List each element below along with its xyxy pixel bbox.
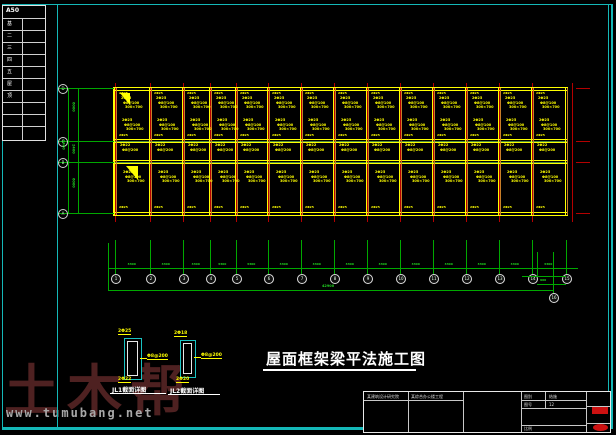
beam-label-lower: 2Φ25Φ8@100300×700 — [375, 170, 397, 184]
bottom-extension-line — [466, 240, 467, 268]
sheet-type-label: 图别 — [524, 394, 532, 400]
right-sub-dim-text: 900 — [540, 278, 546, 282]
bottom-axis-bubble: 1 — [111, 274, 121, 284]
left-axis-bubble: D — [58, 84, 68, 94]
bottom-axis-bubble: 8 — [330, 274, 340, 284]
drawing-title-underline — [263, 369, 416, 371]
bottom-axis-bubble: 10 — [396, 274, 406, 284]
layer-table-row-line — [3, 78, 45, 79]
layer-table-cell: 基 — [7, 20, 12, 27]
detail1-bottom-rebar-label: 2Φ22 — [118, 377, 131, 383]
beam-label-line: Φ8@200 — [341, 148, 357, 153]
frame-column-beam — [531, 88, 532, 215]
beam-label-upper: 2Φ25Φ8@100300×700 — [538, 96, 560, 110]
bottom-axis-bubble: 9 — [363, 274, 373, 284]
beam-label-line: 300×700 — [194, 127, 212, 132]
detail2-caption-underline — [168, 394, 220, 395]
row-grid-stub-right — [576, 88, 590, 89]
beam-midtop-tick-label: 2Φ25 — [119, 133, 128, 137]
bay-dim-text: 3300 — [128, 262, 136, 266]
bottom-extension-line — [301, 240, 302, 268]
bay-dim-text: 3300 — [412, 262, 420, 266]
title-block-divider — [463, 392, 464, 432]
beam-label-lower: 2Φ25Φ8@100300×700 — [441, 170, 463, 184]
beam-label-upper2: 2Φ25Φ8@100300×700 — [341, 118, 363, 132]
stair-triangle-symbol — [126, 166, 138, 180]
layer-table-cell: 屋 — [7, 80, 12, 87]
right-sub-dim-line — [537, 284, 566, 285]
beam-label-lower: 2Φ25Φ8@100300×700 — [474, 170, 496, 184]
beam-bottom-tick-label: 2Φ25 — [437, 205, 446, 209]
beam-label-line: 300×700 — [312, 127, 330, 132]
frame-top — [2, 4, 612, 5]
bottom-extension-line — [236, 240, 237, 268]
beam-label-line: Φ8@200 — [190, 148, 206, 153]
beam-label-line: 300×700 — [445, 179, 463, 184]
bottom-axis-bubble: 3 — [179, 274, 189, 284]
layer-table-cell: 二 — [7, 32, 12, 39]
detail1-stirrup — [127, 341, 138, 376]
beam-label-lower: 2Φ25Φ8@100300×700 — [507, 170, 529, 184]
beam-label-upper2: 2Φ25Φ8@100300×700 — [217, 118, 239, 132]
title-block-divider — [586, 392, 587, 432]
beam-bottom-tick-label: 2Φ25 — [187, 205, 196, 209]
beam-label-line: 300×700 — [444, 127, 462, 132]
cad-viewport: 土木帮 www.tumubang.net 2Φ252Φ25Φ8@100300×7… — [0, 0, 616, 435]
beam-label-upper: 2Φ25Φ8@100300×700 — [472, 96, 494, 110]
bottom-dim-corner — [108, 243, 109, 290]
beam-midtop-tick-label: 2Φ25 — [305, 133, 314, 137]
bottom-axis-bubble: 5 — [232, 274, 242, 284]
beam-bottom-tick-label: 2Φ25 — [371, 205, 380, 209]
layer-table-row-line — [3, 90, 45, 91]
frame-column-beam — [498, 88, 499, 215]
beam-label-upper2: 2Φ25Φ8@100300×700 — [473, 118, 495, 132]
beam-label-line: 300×700 — [544, 179, 562, 184]
beam-label-line: 300×700 — [543, 127, 561, 132]
left-axis-bubble: A — [58, 209, 68, 219]
sheet-no-label: 图号 — [524, 402, 532, 408]
beam-bottom-tick-label: 2Φ25 — [214, 205, 223, 209]
beam-bottom-tick-label: 2Φ25 — [272, 205, 281, 209]
frame-column-beam — [300, 88, 301, 215]
beam-label-mid: 2Φ22Φ8@200 — [241, 143, 259, 152]
beam-label-line: 300×700 — [344, 105, 362, 110]
beam-label-line: 300×700 — [280, 179, 298, 184]
beam-label-upper: 2Φ25Φ8@100300×700 — [274, 96, 296, 110]
title-block: 某建筑设计研究院 某综合办公楼工程 图别 结施 图号 12 比例 — [363, 391, 611, 433]
beam-label-line: 300×700 — [511, 179, 529, 184]
beam-label-lower: 2Φ25Φ8@100300×700 — [408, 170, 430, 184]
beam-label-upper: 2Φ25Φ8@100300×700 — [242, 96, 264, 110]
overall-dim-text: 42900 — [322, 284, 334, 289]
bottom-axis-bubble: 7 — [297, 274, 307, 284]
bottom-extension-line — [400, 240, 401, 268]
beam-label-mid: 2Φ22Φ8@200 — [306, 143, 324, 152]
beam-label-lower: 2Φ25Φ8@100300×700 — [191, 170, 213, 184]
bottom-extension-line — [433, 240, 434, 268]
beam-label-upper2: 2Φ25Φ8@100300×700 — [190, 118, 212, 132]
beam-label-mid: 2Φ22Φ8@200 — [471, 143, 489, 152]
frame-column-beam — [465, 88, 466, 215]
beam-top-tick-label: 2Φ25 — [272, 91, 281, 95]
detail2-stirrup-label: Φ8@200 — [201, 353, 222, 359]
frame-right-outer — [611, 4, 613, 429]
beam-label-line: 300×700 — [279, 127, 297, 132]
beam-label-upper: 2Φ25Φ8@100300×700 — [307, 96, 329, 110]
beam-top-tick-label: 2Φ25 — [503, 91, 512, 95]
beam-label-line: 300×700 — [161, 127, 179, 132]
beam-label-line: Φ8@200 — [407, 148, 423, 153]
bay-dim-text: 3300 — [192, 262, 200, 266]
bottom-axis-bubble: 12 — [462, 274, 472, 284]
beam-label-line: 300×700 — [247, 127, 265, 132]
beam-label-line: Φ8@200 — [539, 148, 555, 153]
bay-dim-text: 3300 — [162, 262, 170, 266]
beam-label-mid: 2Φ22Φ8@200 — [537, 143, 555, 152]
beam-label-lower: 2Φ25Φ8@100300×700 — [218, 170, 240, 184]
beam-label-mid: 2Φ22Φ8@200 — [504, 143, 522, 152]
layer-table-header: A50 — [6, 7, 19, 14]
beam-label-line: 300×700 — [346, 179, 364, 184]
beam-label-line: Φ8@200 — [157, 148, 173, 153]
beam-midtop-tick-label: 2Φ25 — [214, 133, 223, 137]
bay-dim-text: 3300 — [379, 262, 387, 266]
beam-top-tick-label: 2Φ25 — [470, 91, 479, 95]
beam-label-line: 300×700 — [313, 179, 331, 184]
layer-table-cell: 三 — [7, 44, 12, 51]
red-stamp-oval — [593, 424, 608, 431]
beam-label-line: 300×700 — [509, 105, 527, 110]
bay-dim-text: 3300 — [280, 262, 288, 266]
detail2-top-rebar-label: 2Φ18 — [174, 331, 187, 337]
beam-label-line: 300×700 — [379, 179, 397, 184]
title-block-divider — [408, 392, 409, 432]
layer-table-row-line — [3, 42, 45, 43]
frame-column-beam — [269, 88, 270, 215]
beam-label-line: 300×700 — [246, 105, 264, 110]
beam-label-line: 300×700 — [248, 179, 266, 184]
detail1-caption-underline — [110, 393, 166, 394]
beam-midtop-tick-label: 2Φ25 — [272, 133, 281, 137]
layer-table-row-line — [3, 102, 45, 103]
beam-label-line: Φ8@200 — [275, 148, 291, 153]
bay-dim-text: 3300 — [346, 262, 354, 266]
detail2-leader-line — [194, 357, 201, 358]
frame-bottom — [2, 427, 364, 430]
bay-dim-text: 3300 — [511, 262, 519, 266]
sheet-no-value: 12 — [549, 402, 554, 407]
beam-midtop-tick-label: 2Φ25 — [154, 133, 163, 137]
beam-label-upper2: 2Φ25Φ8@100300×700 — [407, 118, 429, 132]
beam-label-upper2: 2Φ25Φ8@100300×700 — [243, 118, 265, 132]
layer-table-row-line — [3, 126, 45, 127]
beam-label-line: 300×700 — [542, 105, 560, 110]
beam-label-line: 300×700 — [162, 179, 180, 184]
row-grid-stub-right — [576, 141, 590, 142]
beam-label-upper: 2Φ25Φ8@100300×700 — [505, 96, 527, 110]
bottom-axis-bubble: 13 — [495, 274, 505, 284]
detail1-top-rebar-label: 2Φ25 — [118, 329, 131, 335]
beam-label-lower: 2Φ25Φ8@100300×700 — [309, 170, 331, 184]
frame-column-beam — [333, 88, 334, 215]
drawing-title: 屋面框架梁平法施工图 — [266, 348, 426, 369]
beam-label-line: 300×700 — [311, 105, 329, 110]
bay-dim-text: 3300 — [478, 262, 486, 266]
beam-label-upper2: 2Φ25Φ8@100300×700 — [308, 118, 330, 132]
left-dim-text: 6000 — [71, 178, 76, 188]
layer-table-row-line — [3, 54, 45, 55]
stair-triangle-symbol — [120, 93, 130, 105]
beam-top-tick-label: 2Φ25 — [338, 91, 347, 95]
title-block-divider — [545, 392, 546, 408]
frame-column-beam — [399, 88, 400, 215]
row-grid-stub-right — [576, 213, 590, 214]
bottom-axis-bubble: 11 — [429, 274, 439, 284]
bottom-dim-line — [108, 268, 578, 269]
beam-label-upper2: 2Φ25Φ8@100300×700 — [122, 118, 144, 132]
left-dim-text: 2400 — [71, 144, 76, 154]
bottom-extension-line — [532, 240, 533, 268]
frame-column-beam — [114, 88, 115, 215]
bottom-axis-bubble: 6 — [264, 274, 274, 284]
title-block-project: 某综合办公楼工程 — [411, 394, 443, 400]
beam-bottom-tick-label: 2Φ25 — [470, 205, 479, 209]
title-block-divider — [364, 400, 463, 401]
bottom-extension-line — [537, 252, 538, 276]
bottom-extension-line — [367, 240, 368, 268]
beam-top-tick-label: 2Φ25 — [371, 91, 380, 95]
beam-label-line: 300×700 — [220, 105, 238, 110]
beam-label-upper: 2Φ25Φ8@100300×700 — [189, 96, 211, 110]
beam-label-mid: 2Φ22Φ8@200 — [155, 143, 173, 152]
beam-label-lower: 2Φ25Φ8@100300×700 — [244, 170, 266, 184]
beam-label-mid: 2Φ22Φ8@200 — [273, 143, 291, 152]
beam-label-mid: 2Φ22Φ8@200 — [339, 143, 357, 152]
beam-midtop-tick-label: 2Φ25 — [536, 133, 545, 137]
frame-column-beam — [432, 88, 433, 215]
beam-label-upper2: 2Φ25Φ8@100300×700 — [440, 118, 462, 132]
beam-label-line: Φ8@200 — [308, 148, 324, 153]
beam-midtop-tick-label: 2Φ25 — [437, 133, 446, 137]
beam-label-line: 300×700 — [510, 127, 528, 132]
beam-label-upper2: 2Φ25Φ8@100300×700 — [374, 118, 396, 132]
frame-column-beam — [116, 88, 117, 215]
bottom-extension-line — [566, 240, 567, 268]
beam-bottom-tick-label: 2Φ25 — [119, 205, 128, 209]
detail2-bottom-rebar-label: 2Φ20 — [176, 377, 189, 383]
column-grid-line — [572, 83, 573, 222]
frame-column-beam — [434, 88, 435, 215]
beam-label-line: 300×700 — [377, 105, 395, 110]
frame-right-inner — [608, 4, 609, 429]
beam-label-line: 300×700 — [345, 127, 363, 132]
frame-column-beam — [267, 88, 268, 215]
beam-label-line: 300×700 — [412, 179, 430, 184]
beam-label-mid: 2Φ22Φ8@200 — [438, 143, 456, 152]
title-block-divider — [521, 392, 522, 432]
beam-label-line: Φ8@200 — [374, 148, 390, 153]
layer-table-cell: 五 — [7, 68, 12, 75]
beam-label-lower: 2Φ25Φ8@100300×700 — [540, 170, 562, 184]
beam-label-mid: 2Φ22Φ8@200 — [215, 143, 233, 152]
beam-label-line: 300×700 — [195, 179, 213, 184]
frame-column-beam — [533, 88, 534, 215]
frame-column-beam — [335, 88, 336, 215]
beam-label-lower: 2Φ25Φ8@100300×700 — [342, 170, 364, 184]
layer-table-row-line — [3, 66, 45, 67]
beam-top-tick-label: 2Φ25 — [240, 91, 249, 95]
left-dim-line — [78, 88, 79, 213]
layer-table-column-divider — [22, 18, 23, 140]
frame-column-beam — [182, 88, 183, 215]
beam-label-line: 300×700 — [125, 105, 143, 110]
beam-label-line: 300×700 — [443, 105, 461, 110]
beam-bottom-tick-label: 2Φ25 — [404, 205, 413, 209]
bottom-extension-line — [499, 240, 500, 268]
bottom-extension-line — [210, 240, 211, 268]
beam-label-line: Φ8@200 — [506, 148, 522, 153]
beam-label-mid: 2Φ22Φ8@200 — [120, 143, 138, 152]
bottom-extension-line — [268, 240, 269, 268]
beam-label-upper2: 2Φ25Φ8@100300×700 — [157, 118, 179, 132]
beam-label-line: 300×700 — [160, 105, 178, 110]
beam-label-line: 300×700 — [193, 105, 211, 110]
beam-label-upper2: 2Φ25Φ8@100300×700 — [506, 118, 528, 132]
bay-dim-text: 3300 — [313, 262, 321, 266]
beam-label-line: 300×700 — [477, 127, 495, 132]
bay-dim-text: 3300 — [247, 262, 255, 266]
bottom-axis-bubble: 2 — [146, 274, 156, 284]
detail2-section-outline — [180, 340, 196, 378]
left-dim-text: 6000 — [71, 102, 76, 112]
layer-table-cell: 四 — [7, 56, 12, 63]
title-block-divider — [521, 408, 586, 409]
frame-column-beam — [366, 88, 367, 215]
frame-column-beam — [401, 88, 402, 215]
left-dim-line — [68, 88, 69, 213]
bottom-extension-line — [183, 240, 184, 268]
beam-label-upper2: 2Φ25Φ8@100300×700 — [539, 118, 561, 132]
detail1-leader-line — [140, 358, 147, 359]
frame-column-beam — [211, 88, 212, 215]
row-grid-stub-right — [576, 162, 590, 163]
frame-column-beam — [184, 88, 185, 215]
beam-bottom-tick-label: 2Φ25 — [503, 205, 512, 209]
beam-label-upper: 2Φ25Φ8@100300×700 — [156, 96, 178, 110]
scale-label: 比例 — [524, 426, 532, 432]
beam-bottom-tick-label: 2Φ25 — [536, 205, 545, 209]
layer-table-cell: 顶 — [7, 92, 12, 99]
beam-midtop-tick-label: 2Φ25 — [404, 133, 413, 137]
bottom-axis-bubble: 4 — [206, 274, 216, 284]
beam-label-line: 300×700 — [410, 105, 428, 110]
frame-column-beam — [368, 88, 369, 215]
frame-column-beam — [500, 88, 501, 215]
layer-table: A50 基二三四五屋顶 — [2, 5, 46, 141]
bay-dim-text: 3300 — [544, 262, 552, 266]
bottom-extension-line — [115, 240, 116, 268]
bottom-extension-line — [334, 240, 335, 268]
beam-label-line: 300×700 — [411, 127, 429, 132]
beam-midtop-tick-label: 2Φ25 — [187, 133, 196, 137]
beam-section-detail-2: 2Φ18 Φ8@200 2Φ20 JL2截面详图 — [166, 328, 232, 396]
beam-bottom-tick-label: 2Φ25 — [305, 205, 314, 209]
beam-label-line: Φ8@200 — [243, 148, 259, 153]
frame-column-beam — [567, 88, 568, 215]
beam-label-line: 300×700 — [478, 179, 496, 184]
beam-top-tick-label: 2Φ25 — [187, 91, 196, 95]
beam-label-line: Φ8@200 — [217, 148, 233, 153]
beam-bottom-tick-label: 2Φ25 — [154, 205, 163, 209]
beam-label-line: 300×700 — [278, 105, 296, 110]
title-block-divider — [521, 400, 586, 401]
beam-label-mid: 2Φ22Φ8@200 — [372, 143, 390, 152]
frame-column-beam — [302, 88, 303, 215]
detail1-stirrup-label: Φ8@200 — [147, 354, 168, 360]
bottom-extension-line — [150, 240, 151, 268]
beam-label-upper: 2Φ25Φ8@100300×700 — [340, 96, 362, 110]
bottom-sub-axis-bubble: 16 — [549, 293, 559, 303]
frame-column-beam — [149, 88, 150, 215]
beam-label-line: 300×700 — [221, 127, 239, 132]
beam-bottom-tick-label: 2Φ25 — [240, 205, 249, 209]
beam-label-line: 300×700 — [476, 105, 494, 110]
beam-top-tick-label: 2Φ25 — [154, 91, 163, 95]
layer-table-row-line — [3, 18, 45, 19]
right-sub-dim-line — [522, 276, 566, 277]
beam-label-line: Φ8@200 — [473, 148, 489, 153]
beam-label-upper: 2Φ25Φ8@100300×700 — [406, 96, 428, 110]
beam-label-mid: 2Φ22Φ8@200 — [405, 143, 423, 152]
beam-label-line: Φ8@200 — [440, 148, 456, 153]
beam-label-upper2: 2Φ25Φ8@100300×700 — [275, 118, 297, 132]
roof-beam-bottom — [113, 215, 568, 216]
beam-label-upper: 2Φ25Φ8@100300×700 — [439, 96, 461, 110]
layer-table-row-line — [3, 30, 45, 31]
detail1-section-outline — [124, 338, 142, 380]
beam-label-line: 300×700 — [378, 127, 396, 132]
beam-top-tick-label: 2Φ25 — [437, 91, 446, 95]
sheet-type-value: 结施 — [549, 394, 557, 400]
beam-label-upper: 2Φ25Φ8@100300×700 — [373, 96, 395, 110]
red-stamp-rect — [592, 407, 608, 414]
beam-midtop-tick-label: 2Φ25 — [470, 133, 479, 137]
beam-label-line: 300×700 — [126, 127, 144, 132]
beam-label-upper: 2Φ25Φ8@100300×700 — [216, 96, 238, 110]
beam-label-line: 300×700 — [222, 179, 240, 184]
beam-label-lower: 2Φ25Φ8@100300×700 — [276, 170, 298, 184]
overall-dim-line — [108, 290, 553, 291]
title-block-company: 某建筑设计研究院 — [367, 394, 399, 400]
beam-midtop-tick-label: 2Φ25 — [338, 133, 347, 137]
beam-top-tick-label: 2Φ25 — [404, 91, 413, 95]
beam-midtop-tick-label: 2Φ25 — [503, 133, 512, 137]
left-axis-bubble: B — [58, 158, 68, 168]
beam-top-tick-label: 2Φ25 — [305, 91, 314, 95]
beam-bottom-tick-label: 2Φ25 — [338, 205, 347, 209]
frame-column-beam — [467, 88, 468, 215]
layer-table-row-line — [3, 114, 45, 115]
left-dim-text: 8400 — [61, 140, 66, 150]
beam-midtop-tick-label: 2Φ25 — [240, 133, 249, 137]
bubble-stem — [553, 284, 554, 293]
beam-label-line: Φ8@200 — [122, 148, 138, 153]
beam-top-tick-label: 2Φ25 — [214, 91, 223, 95]
beam-label-lower: 2Φ25Φ8@100300×700 — [158, 170, 180, 184]
beam-top-tick-label: 2Φ25 — [536, 91, 545, 95]
frame-column-beam — [151, 88, 152, 215]
